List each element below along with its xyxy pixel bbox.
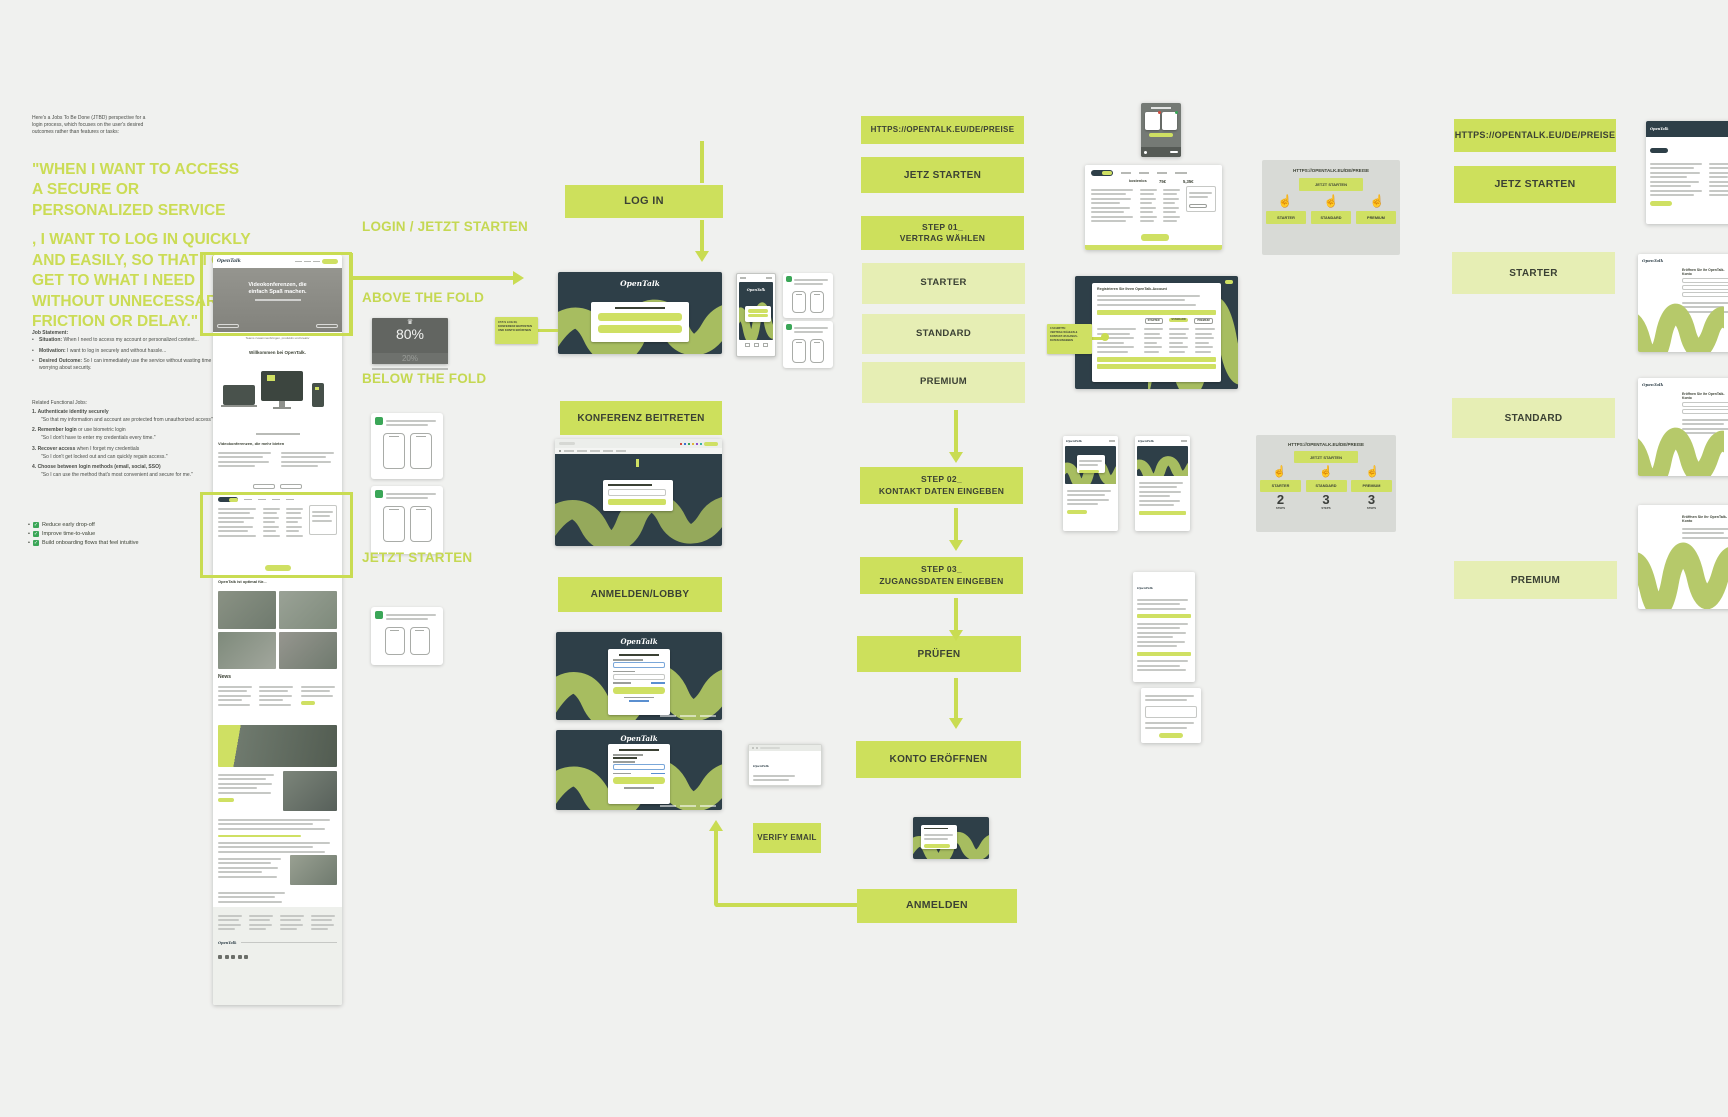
phone-mockup (410, 506, 432, 542)
appstore-card-3[interactable] (371, 607, 443, 665)
popup-screenshot[interactable]: OpenTalk (748, 744, 822, 786)
steps-label: STEPS (1351, 506, 1392, 510)
sticky-note-steps[interactable]: 3 SCHRITTE:VERTRAG WÄHLEN &KONTAKT-/ZUGA… (1047, 324, 1092, 354)
flow-node-step1[interactable]: STEP 01_VERTRAG WÄHLEN (861, 216, 1024, 250)
welcome-heading: Willkommen bei OpenTalk. (213, 343, 342, 361)
tap-icon: ☝ (1319, 465, 1333, 478)
tap-icon: ☝ (1370, 194, 1385, 208)
app-icon (786, 324, 792, 330)
panel-cta-chip[interactable]: JETZT STARTEN (1299, 178, 1363, 191)
flow-node-step2[interactable]: STEP 02_KONTAKT DATEN EINGEBEN (860, 467, 1023, 504)
pricing-cta-pill (1141, 234, 1169, 241)
label-below-the-fold: BELOW THE FOLD (362, 371, 486, 386)
jtbd-intro-note: Here's a Jobs To Be Done (JTBD) perspect… (32, 115, 154, 135)
flow-node-konto-eroeffnen[interactable]: KONTO ERÖFFNEN (856, 741, 1021, 778)
price-high: 5,35€ (1183, 179, 1207, 184)
whiteboard-canvas[interactable]: Here's a Jobs To Be Done (JTBD) perspect… (0, 0, 1728, 1117)
arrowhead-down (949, 540, 963, 551)
features-section: Videokonferenzen, die mehr bieten (213, 439, 342, 479)
phone-mockup (410, 433, 432, 469)
flow-node-jetz-starten[interactable]: JETZ STARTEN (861, 157, 1024, 193)
tap-panel-1[interactable]: HTTPS://OPENTALK.EU/DE/PREISE JETZT STAR… (1262, 160, 1400, 255)
edge-pricing-screenshot[interactable]: OpenTalk (1646, 121, 1728, 224)
tap-icon: ☝ (1278, 194, 1293, 208)
news-section: News (213, 671, 342, 723)
join-conference-screenshot[interactable] (555, 439, 722, 546)
flow-node-url-preise[interactable]: HTTPS://OPENTALK.EU/DE/PREISE (861, 116, 1024, 144)
right-flow-standard[interactable]: STANDARD (1452, 398, 1615, 438)
stat-caption-line (372, 368, 448, 370)
job-item-lead: Desired Outcome: (39, 358, 82, 364)
story-row (213, 769, 342, 813)
functional-jobs: Related Functional Jobs: 1. Authenticate… (32, 400, 230, 483)
checklist-item: Build onboarding flows that feel intuiti… (42, 540, 139, 546)
konto-title: Eröffnen Sie Ihr OpenTalk-Konto (1682, 392, 1728, 400)
tap-icon: ☝ (1272, 465, 1286, 478)
panel-plan-chip[interactable]: PREMIUM (1356, 211, 1396, 224)
tap-panel-2[interactable]: HTTPS://OPENTALK.EU/DE/PREISE JETZT STAR… (1256, 435, 1396, 532)
job-item-text: When I need to access my account or pers… (62, 337, 199, 343)
arrowhead-up (709, 820, 723, 831)
arrow-to-login-screen (351, 276, 514, 280)
konto-title: Eröffnen Sie Ihr OpenTalk-Konto (1682, 515, 1728, 523)
checklist-item: Improve time-to-value (42, 531, 95, 537)
optimal-heading: OpenTalk ist optimal für... (213, 577, 342, 589)
appstore-card-1[interactable] (371, 413, 443, 479)
flow-node-standard[interactable]: STANDARD (862, 314, 1025, 354)
pricing-highlight (200, 492, 353, 578)
job-item-lead: Motivation: (39, 348, 66, 354)
homepage-screenshot[interactable]: OpenTalk Videokonferenzen, die einfach S… (213, 255, 342, 1005)
arrow-line (714, 831, 718, 907)
flow-node-anmelden[interactable]: ANMELDEN (857, 889, 1017, 923)
email-confirm-screenshot[interactable] (913, 817, 989, 859)
stat-value: 80% (372, 327, 448, 342)
story-photo-1 (218, 725, 337, 767)
price-free: kostenlos (1129, 179, 1159, 184)
login-form-screenshot-2[interactable]: OpenTalk (556, 730, 722, 810)
connector-dot (1101, 333, 1109, 341)
check-icon: ✓ (33, 522, 39, 528)
arrow-line (700, 141, 704, 183)
panel-plan-chip[interactable]: PREMIUM (1351, 480, 1392, 492)
right-flow-premium[interactable]: PREMIUM (1454, 561, 1617, 599)
opentalk-logo: OpenTalk (556, 734, 722, 743)
checklist-item: Reduce early drop-off (42, 522, 95, 528)
flow-node-anmelden-lobby[interactable]: ANMELDEN/LOBBY (558, 577, 722, 612)
steps-count: 2 (1260, 493, 1301, 506)
right-flow-jetz-starten[interactable]: JETZ STARTEN (1454, 166, 1616, 203)
pricing-table-screenshot[interactable]: kostenlos 75€ 5,35€ (1085, 165, 1222, 250)
label-jetzt-starten: JETZT STARTEN (362, 550, 472, 565)
steps-label: STEPS (1306, 506, 1347, 510)
panel-plan-chip[interactable]: STARTER (1266, 211, 1306, 224)
arrow-line (954, 598, 958, 630)
panel-cta-chip[interactable]: JETZT STARTEN (1294, 451, 1358, 463)
job-statement: Job Statement: Situation: When I need to… (32, 330, 224, 376)
right-flow-starter[interactable]: STARTER (1452, 252, 1615, 294)
arrow-line (954, 678, 958, 718)
job-item-text: I want to log in securely and without ha… (66, 348, 167, 354)
konto-title: Eröffnen Sie Ihr OpenTalk-Konto (1682, 268, 1728, 276)
sticky-connector (538, 329, 558, 332)
bullet: • (28, 531, 30, 537)
arrowhead-down (949, 718, 963, 729)
label-above-the-fold: ABOVE THE FOLD (362, 290, 484, 305)
mobile-screenshot-4[interactable] (1141, 688, 1201, 743)
functional-jobs-title: Related Functional Jobs: (32, 400, 230, 407)
flow-node-premium[interactable]: PREMIUM (862, 362, 1025, 403)
phone-mockup (810, 291, 824, 313)
mobile-screenshot-3[interactable]: OpenTalk (1133, 572, 1195, 682)
arrow-line (954, 508, 958, 540)
tap-icon: ☝ (1324, 194, 1339, 208)
text-block (213, 813, 342, 853)
edge-konto-screenshot-1[interactable]: OpenTalk Eröffnen Sie Ihr OpenTalk-Konto (1638, 254, 1728, 352)
footer: OpenTalk (213, 907, 342, 1005)
arrowhead-down (949, 452, 963, 463)
appstore-card-small-2[interactable] (783, 321, 833, 368)
login-form-screenshot-1[interactable]: OpenTalk (556, 632, 722, 720)
job-statement-title: Job Statement: (32, 330, 224, 337)
bullet: • (28, 522, 30, 528)
steps-count: 3 (1351, 493, 1392, 506)
check-icon: ✓ (33, 531, 39, 537)
right-flow-url[interactable]: HTTPS://OPENTALK.EU/DE/PREISE (1454, 119, 1616, 152)
arrow-line (700, 220, 704, 251)
login-card (608, 744, 670, 804)
app-icon (375, 417, 383, 425)
edge-konto-screenshot-3[interactable]: Eröffnen Sie Ihr OpenTalk-Konto (1638, 505, 1728, 609)
login-card (608, 649, 670, 715)
steps-count: 3 (1306, 493, 1347, 506)
flow-node-verify-email[interactable]: VERIFY EMAIL (753, 823, 821, 853)
label-login-jetzt-starten: LOGIN / JETZT STARTEN (362, 219, 528, 234)
sticky-note-cta[interactable]: CTA'S LOG IN,KONFERENZ BEITRETENUND KONT… (495, 317, 538, 344)
stat-secondary: 20% (372, 353, 448, 364)
panel-plan-chip[interactable]: STANDARD (1306, 480, 1347, 492)
photo-grid (213, 589, 342, 671)
flow-node-log-in[interactable]: LOG IN (565, 185, 723, 218)
flow-node-starter[interactable]: STARTER (862, 263, 1025, 304)
panel-plan-chip[interactable]: STANDARD (1311, 211, 1351, 224)
app-icon (786, 276, 792, 282)
panel-url: HTTPS://OPENTALK.EU/DE/PREISE (1256, 442, 1396, 447)
price-mid: 75€ (1159, 179, 1183, 184)
flow-node-step3[interactable]: STEP 03_ZUGANGSDATEN EINGEBEN (860, 557, 1023, 594)
arrow-line (716, 903, 857, 907)
mobile-screenshot-1[interactable]: OpenTalk (1063, 436, 1118, 531)
registration-screenshot[interactable]: Registrieren Sie Ihren OpenTalk-Account … (1075, 276, 1238, 389)
login-choice-card (591, 302, 689, 342)
arrow-line (954, 410, 958, 452)
edge-konto-screenshot-2[interactable]: OpenTalk Eröffnen Sie Ihr OpenTalk-Konto (1638, 378, 1728, 476)
login-landing-mobile[interactable]: OpenTalk (736, 273, 776, 357)
modal-screenshot[interactable] (1141, 103, 1181, 157)
opentalk-logo: OpenTalk (556, 637, 722, 646)
arrowhead-down (695, 251, 709, 262)
flow-node-konferenz-beitreten[interactable]: KONFERENZ BEITRETEN (560, 401, 722, 435)
phone-mockup (385, 627, 405, 655)
app-icon (375, 611, 383, 619)
appstore-card-small-1[interactable] (783, 273, 833, 318)
bullet: • (28, 540, 30, 546)
devices-illustration (213, 361, 342, 431)
panel-url: HTTPS://OPENTALK.EU/DE/PREISE (1262, 168, 1400, 173)
above-fold-highlight (200, 252, 352, 336)
mobile-screenshot-2[interactable]: OpenTalk (1135, 436, 1190, 531)
phone-mockup (383, 433, 405, 469)
join-dialog (603, 480, 673, 511)
phone-mockup (792, 291, 806, 313)
phone-mockup (792, 339, 806, 363)
jtbd-quote-part1: "WHEN I WANT TO ACCESS A SECURE OR PERSO… (32, 160, 252, 221)
phone-mockup (383, 506, 405, 542)
tap-icon: ☝ (1366, 465, 1380, 478)
about-block (213, 887, 342, 907)
arrowhead-down (949, 630, 963, 641)
login-landing-screenshot[interactable]: OpenTalk (558, 272, 722, 354)
qa-row (213, 853, 342, 887)
check-icon: ✓ (33, 540, 39, 546)
opentalk-logo: OpenTalk (558, 279, 722, 288)
appstore-card-2[interactable] (371, 486, 443, 554)
steps-label: STEPS (1260, 506, 1301, 510)
app-icon (375, 490, 383, 498)
job-item-lead: Situation: (39, 337, 62, 343)
phone-mockup (410, 627, 430, 655)
flow-node-pruefen[interactable]: PRÜFEN (857, 636, 1021, 672)
arrowhead-right (513, 271, 524, 285)
panel-plan-chip[interactable]: STARTER (1260, 480, 1301, 492)
fold-stat-card[interactable]: ♛ 80% 20% (372, 318, 448, 364)
phone-mockup (810, 339, 824, 363)
register-title: Registrieren Sie Ihren OpenTalk-Account (1097, 287, 1216, 291)
